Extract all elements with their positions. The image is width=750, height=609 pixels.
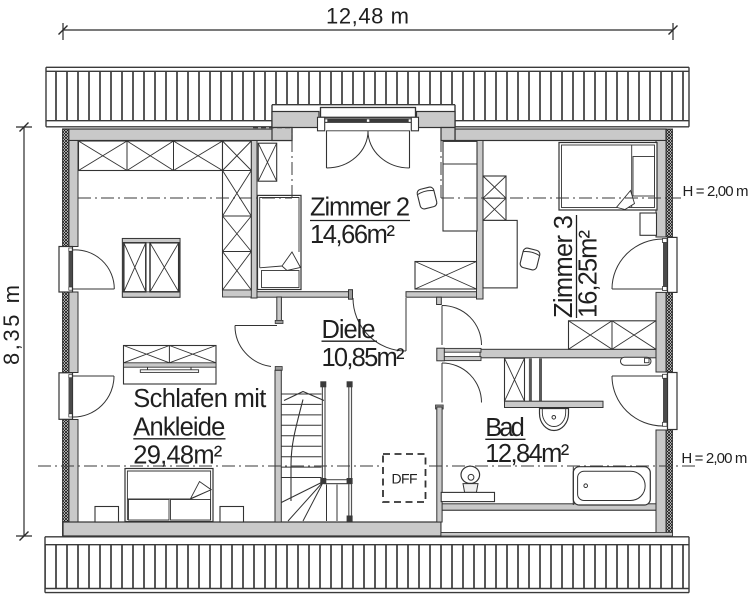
svg-text:Schlafen mit: Schlafen mit	[133, 385, 266, 413]
svg-text:8,35 m: 8,35 m	[0, 285, 24, 365]
svg-text:DFF: DFF	[392, 470, 418, 486]
svg-text:29,48m²: 29,48m²	[133, 442, 222, 470]
svg-text:Zimmer 2: Zimmer 2	[310, 193, 410, 221]
svg-text:Bad: Bad	[485, 414, 525, 442]
svg-text:14,66m²: 14,66m²	[310, 221, 395, 249]
svg-text:12,84m²: 12,84m²	[485, 440, 569, 468]
svg-text:16,25m²: 16,25m²	[575, 230, 603, 318]
svg-text:10,85m²: 10,85m²	[322, 344, 405, 372]
svg-text:Diele: Diele	[322, 316, 376, 344]
svg-text:Ankleide: Ankleide	[133, 414, 225, 442]
svg-text:H = 2,00 m: H = 2,00 m	[683, 183, 749, 200]
svg-text:H = 2,00 m: H = 2,00 m	[681, 450, 747, 467]
svg-text:12,48 m: 12,48 m	[326, 4, 409, 29]
